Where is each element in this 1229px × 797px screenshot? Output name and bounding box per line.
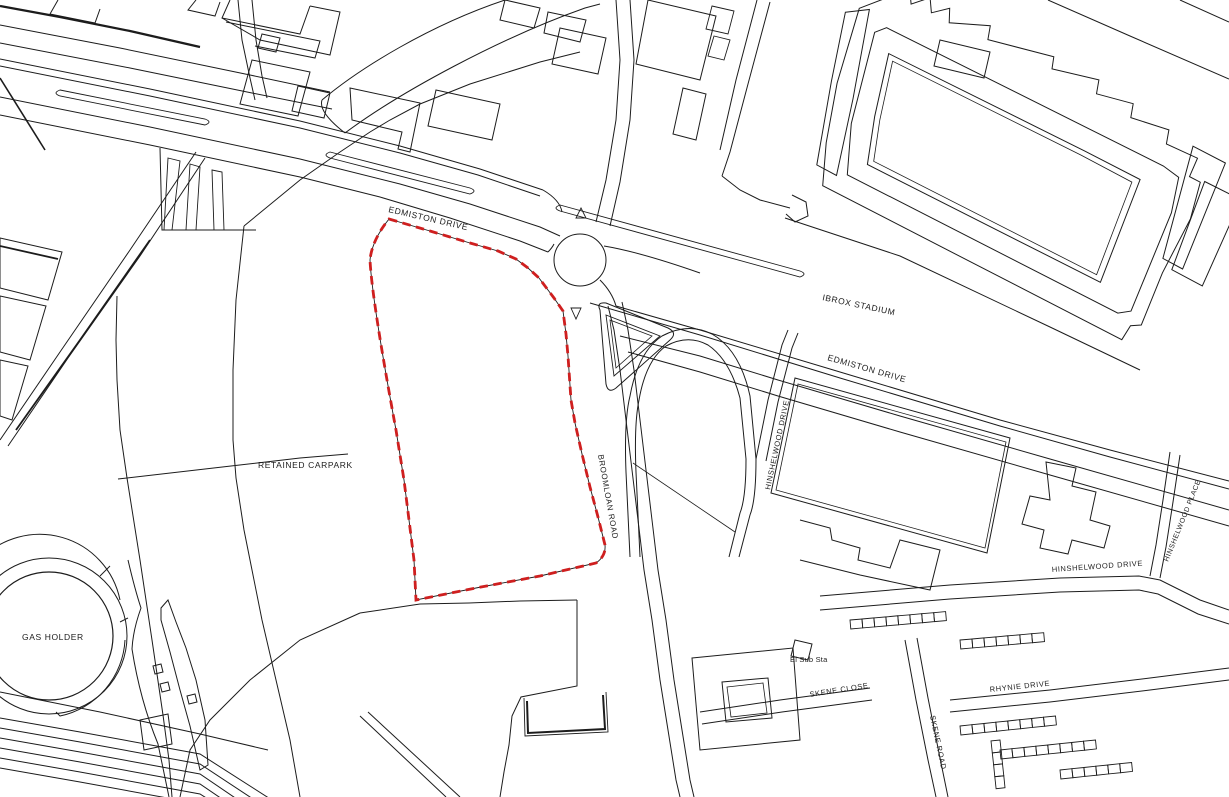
svg-text:RETAINED CARPARK: RETAINED CARPARK (258, 460, 353, 470)
svg-text:GAS HOLDER: GAS HOLDER (22, 632, 84, 642)
svg-text:El Sub Sta: El Sub Sta (790, 655, 828, 664)
